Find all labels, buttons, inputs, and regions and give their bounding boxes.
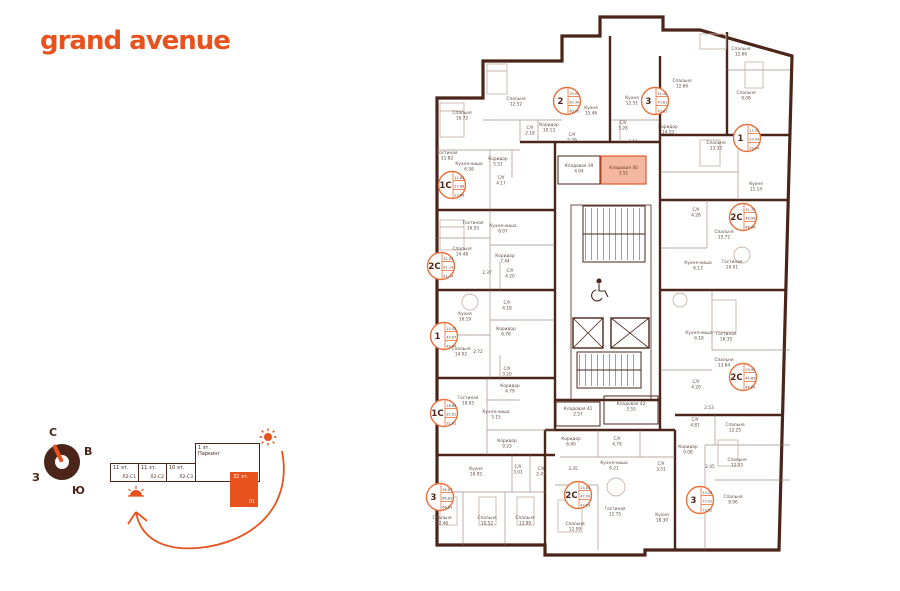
apartment-badge[interactable]: 2С31.7348.0648.06 — [730, 204, 757, 231]
apartment-area-value: 47.09 — [580, 495, 590, 499]
room-label: С/У4.28 — [691, 207, 701, 218]
room-label: С/У4.79 — [612, 436, 622, 447]
apartment-badge[interactable]: 1С18.6531.8131.81 — [431, 400, 458, 427]
block-floors: 11 эт. — [141, 465, 156, 471]
room-label: Кухня16.95 — [469, 466, 483, 477]
apartment-badge[interactable]: 113.3533.0433.04 — [734, 125, 761, 152]
room-label: С/У4.17 — [496, 175, 506, 186]
room-label: 3.35 — [568, 466, 578, 472]
block-label: Л2-С3 — [179, 475, 193, 480]
room-label: С/У4.20 — [505, 268, 515, 279]
room-label: Спальня12.33 — [727, 457, 747, 468]
room-label: Коридор5.51 — [488, 156, 508, 167]
apartment-badge[interactable]: 334.4270.8170.81 — [642, 88, 669, 115]
room-label: 2.72 — [473, 349, 483, 355]
apartment-type-label: 2С — [565, 491, 577, 501]
elevator-icon — [573, 318, 649, 348]
apartment-area-value: 48.06 — [745, 225, 755, 229]
room-label: Кухня-ниша6.58 — [455, 161, 483, 172]
page: grand avenue — [0, 0, 900, 591]
block-floors: 10 эт. — [169, 465, 184, 471]
apartment-type-label: 1С — [431, 409, 443, 419]
apartment-badge[interactable]: 2С24.8447.0947.09 — [565, 482, 592, 509]
apartment-type-label: 3 — [431, 493, 437, 503]
apartment-type-label: 3 — [691, 496, 697, 506]
compass-south-label: Ю — [72, 484, 85, 497]
room-label: Кладовая 423.55 — [617, 401, 646, 412]
apartment-badge[interactable]: 114.0243.8743.87 — [431, 323, 458, 350]
compass-north-label: С — [49, 426, 57, 439]
room-label: Спальня14.48 — [452, 246, 472, 257]
apartment-area-value: 70.81 — [657, 109, 667, 113]
block-label: Л2-С1 — [122, 475, 136, 480]
apartment-type-label: 3 — [646, 97, 652, 107]
room-label: 2.37 — [482, 270, 492, 276]
room-label: Коридор9.08 — [678, 444, 698, 455]
room-label: Кухня18.30 — [655, 512, 669, 523]
block-label: Паркинг — [198, 451, 220, 457]
apartment-area-value: 44.89 — [745, 377, 755, 381]
room-label: Кухня12.51 — [625, 95, 639, 106]
room-label: 3.10 — [628, 139, 638, 145]
plan-walls — [437, 17, 792, 555]
apartment-area-value: 24.84 — [580, 486, 591, 490]
apartment-area-value: 11.82 — [454, 176, 464, 180]
apartment-area-value: 60.30 — [569, 109, 579, 113]
room-label: Коридор6.40 — [561, 436, 581, 447]
room-label: Коридор6.76 — [496, 326, 516, 337]
compass-ring — [44, 444, 80, 480]
wheelchair-icon — [592, 279, 608, 301]
room-label: Спальня12.52 — [506, 96, 526, 107]
apartment-area-value: 29.99 — [745, 368, 755, 372]
apartment-area-value: 33.04 — [749, 146, 760, 150]
apartment-type-label: 1 — [738, 134, 744, 144]
building-scheme: 11 эт. Л2-С1 11 эт. Л2-С2 10 эт. Л2-С3 1… — [110, 443, 260, 509]
apartment-area-value: 61.14 — [443, 274, 454, 278]
sun-icon — [260, 429, 277, 446]
room-label: С/У3.51 — [656, 461, 666, 472]
apartment-badge[interactable]: 333.5473.0273.02 — [687, 487, 714, 514]
room-label: 2.45 — [705, 464, 715, 470]
apartment-area-value: 43.87 — [446, 344, 456, 348]
apartment-type-label: 2С — [730, 373, 742, 383]
room-label: С/У4.20 — [691, 379, 701, 390]
room-label: Коридор4.79 — [500, 383, 520, 394]
room-label: С/У4.18 — [502, 300, 512, 311]
room-label: Гостиная12.75 — [605, 506, 626, 517]
apartment-type-label: 1 — [435, 332, 441, 342]
apartment-type-label: 1С — [439, 181, 451, 191]
apartment-type-label: 2С — [428, 262, 440, 272]
block-floors: 11 эт. — [113, 465, 128, 471]
apartment-area-value: 73.02 — [702, 500, 712, 504]
room-label: Кладовая 412.57 — [564, 406, 593, 417]
room-label: Кухня-ниша5.15 — [482, 409, 510, 420]
apartment-area-value: 73.02 — [702, 508, 712, 512]
block-floors: 32 эт. — [233, 474, 248, 480]
apartment-area-value: 66.83 — [442, 497, 452, 501]
apartment-area-value: 48.06 — [745, 217, 755, 221]
apartment-area-value: 61.14 — [443, 266, 454, 270]
apartment-badge[interactable]: 2С29.9944.8944.89 — [730, 364, 757, 391]
room-label: Коридор10.13 — [539, 122, 559, 133]
apartment-area-value: 31.03 — [443, 257, 453, 261]
room-label: Кухня-ниша6.18 — [685, 330, 713, 341]
room-label: С/У3.20 — [502, 366, 512, 377]
apartment-area-value: 13.35 — [749, 129, 759, 133]
room-label: Гостиная18.65 — [458, 395, 479, 406]
room-label: Коридор7.44 — [495, 253, 515, 264]
apartment-badge[interactable]: 229.0560.3060.30 — [554, 88, 581, 115]
apartment-type-label: 2С — [730, 213, 742, 223]
apartment-area-value: 60.30 — [569, 101, 579, 105]
room-label: Гостиная16.01 — [722, 259, 743, 270]
apartment-area-value: 29.05 — [569, 92, 579, 96]
apartment-badge[interactable]: 2С31.0361.1461.14 — [428, 253, 455, 280]
room-label: Спальня13.64 — [714, 357, 734, 368]
room-label: Кухня-ниша6.21 — [600, 460, 628, 471]
apartment-area-value: 43.87 — [446, 336, 456, 340]
room-label: Гостиная11.82 — [437, 150, 458, 161]
room-label: Кухня11.14 — [749, 181, 763, 192]
room-label: С/У3.01 — [513, 464, 523, 475]
apartment-area-value: 33.04 — [749, 138, 760, 142]
apartment-area-value: 33.54 — [702, 491, 713, 495]
apartment-area-value: 31.73 — [745, 208, 755, 212]
apartment-area-value: 47.09 — [580, 503, 590, 507]
apartment-area-value: 70.81 — [657, 101, 667, 105]
apartment-area-value: 31.81 — [446, 413, 456, 417]
room-label: Кухня-ниша6.13 — [684, 260, 712, 271]
compass-east-label: В — [84, 445, 92, 458]
room-label: Спальня16.72 — [452, 110, 472, 121]
room-label: Спальня15.72 — [714, 229, 734, 240]
room-label: Кухня-ниша6.07 — [489, 223, 517, 234]
room-label: Коридор9.23 — [497, 438, 517, 449]
apartment-area-value: 27.88 — [454, 193, 464, 197]
scheme-block-l2-c3[interactable]: 10 эт. Л2-С3 — [166, 463, 196, 482]
compass-west-label: З — [32, 471, 40, 484]
apartment-area-value: 36.87 — [442, 488, 452, 492]
scheme-block-l1-active[interactable]: 32 эт. Л1 — [230, 472, 258, 507]
room-label: Кладовая 394.04 — [565, 163, 594, 174]
scheme-block-l2-c2[interactable]: 11 эт. Л2-С2 — [138, 463, 167, 482]
room-label: С/У3.28 — [618, 120, 628, 131]
room-label: Спальня12.25 — [725, 422, 745, 433]
apartment-area-value: 27.88 — [454, 185, 464, 189]
room-label: Гостиная16.35 — [716, 331, 737, 342]
room-label: Спальня8.96 — [723, 494, 743, 505]
room-label: Спальня12.66 — [672, 78, 692, 89]
apartment-area-value: 44.89 — [745, 385, 755, 389]
room-label: С/У4.81 — [690, 417, 700, 428]
room-label: Коридор14.10 — [658, 124, 678, 135]
apartment-area-value: 34.42 — [657, 92, 667, 96]
room-label: Кухня15.46 — [584, 105, 598, 116]
room-label: Кухня16.19 — [458, 311, 472, 322]
apartment-area-value: 18.65 — [446, 404, 456, 408]
selected-storage-unit[interactable]: Кладовая 403.51 — [601, 156, 646, 184]
block-label: Л2-С2 — [150, 475, 164, 480]
room-label: Спальня12.66 — [731, 46, 751, 57]
room-label: Спальня9.08 — [736, 90, 756, 101]
scheme-block-l2-c1[interactable]: 11 эт. Л2-С1 — [110, 463, 139, 482]
apartment-badge[interactable]: 1С11.8227.8827.88 — [439, 172, 466, 199]
apartment-type-label: 2 — [558, 97, 564, 107]
apartment-area-value: 31.81 — [446, 421, 456, 425]
room-label: Спальня13.35 — [706, 140, 726, 151]
room-label: С/У5.29 — [567, 132, 577, 143]
stairs-elevator-core — [556, 156, 658, 426]
apartment-area-value: 14.02 — [446, 327, 456, 331]
room-label: Гостиная16.55 — [463, 220, 484, 231]
room-label: С/У2.18 — [525, 125, 535, 136]
apartment-badge[interactable]: 336.8766.8366.83 — [427, 484, 454, 511]
apartment-area-value: 66.83 — [442, 505, 452, 509]
room-label: 2.53 — [704, 405, 714, 411]
block-label: Л1 — [249, 500, 255, 505]
compass: С В З Ю — [30, 425, 102, 501]
